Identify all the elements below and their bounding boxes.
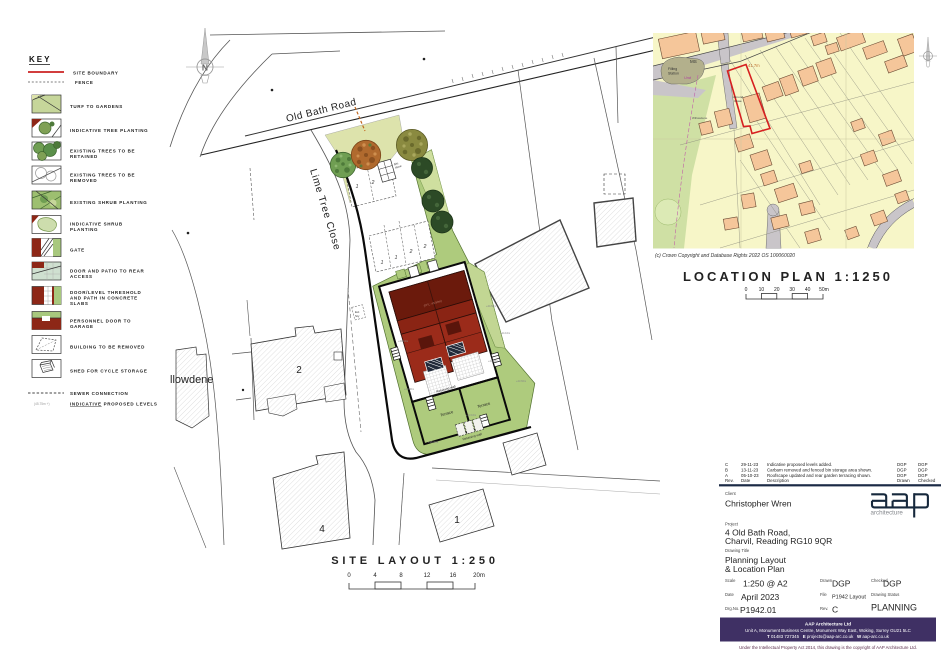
svg-text:DGP: DGP (918, 473, 928, 478)
svg-text:architecture: architecture (871, 510, 904, 517)
svg-text:4: 4 (319, 524, 325, 535)
svg-text:Under the Intellectual Propert: Under the Intellectual Property Act 2014… (739, 645, 917, 650)
svg-text:29-11-23: 29-11-23 (741, 462, 759, 467)
svg-text:INDICATIVE PROPOSED LEVELS: INDICATIVE PROPOSED LEVELS (70, 402, 158, 407)
svg-text:+43.60m: +43.60m (516, 379, 526, 383)
svg-text:INDICATIVE TREE PLANTING: INDICATIVE TREE PLANTING (70, 128, 148, 133)
svg-text:Date: Date (741, 478, 751, 483)
svg-text:Drg.No.: Drg.No. (725, 606, 739, 611)
svg-text:DGP: DGP (918, 467, 928, 472)
svg-text:12: 12 (424, 573, 431, 579)
svg-text:DGP: DGP (897, 467, 907, 472)
svg-text:DGP: DGP (897, 473, 907, 478)
svg-text:P1942.01: P1942.01 (740, 605, 777, 615)
svg-text:Charvil, Reading RG10 9QR: Charvil, Reading RG10 9QR (725, 536, 832, 546)
svg-text:16: 16 (450, 573, 457, 579)
svg-text:+44.10m: +44.10m (500, 331, 510, 335)
svg-text:Old Bath Road: Old Bath Road (285, 97, 358, 125)
svg-text:llowdene: llowdene (170, 374, 213, 386)
svg-text:DGP: DGP (897, 462, 907, 467)
svg-text:REMOVED: REMOVED (70, 178, 97, 183)
svg-text:Rev.: Rev. (725, 478, 734, 483)
svg-text:FENCE: FENCE (75, 80, 94, 85)
svg-text:Checked: Checked (918, 478, 936, 483)
svg-text:+44.05m: +44.05m (488, 359, 498, 363)
svg-text:N: N (202, 63, 208, 73)
svg-text:& Location Plan: & Location Plan (725, 564, 785, 574)
svg-text:A: A (725, 473, 728, 478)
svg-text:PLANTING: PLANTING (70, 227, 98, 232)
svg-text:Close: Close (734, 99, 742, 103)
svg-text:RETAINED: RETAINED (70, 154, 98, 159)
svg-text:Date: Date (725, 592, 735, 597)
svg-text:8: 8 (399, 573, 403, 579)
svg-text:2: 2 (409, 249, 413, 255)
svg-text:Rev.: Rev. (820, 606, 828, 611)
svg-text:+43.90m: +43.90m (404, 387, 414, 391)
svg-text:Sty: Sty (355, 314, 360, 318)
svg-text:1: 1 (381, 260, 384, 266)
svg-text:TURF TO GARDENS: TURF TO GARDENS (70, 104, 123, 109)
svg-text:GATE: GATE (70, 248, 85, 253)
svg-text:Station: Station (668, 72, 679, 76)
svg-text:50m: 50m (819, 287, 829, 293)
svg-text:SITE BOUNDARY: SITE BOUNDARY (73, 71, 119, 76)
svg-text:Description: Description (767, 478, 790, 483)
svg-text:MS: MS (690, 59, 697, 64)
svg-text:INDICATIVE SHRUB: INDICATIVE SHRUB (70, 222, 123, 227)
svg-text:P1942 Layout: P1942 Layout (832, 595, 866, 601)
svg-text:Unit A, Monument Business Cent: Unit A, Monument Business Centre, Monume… (745, 628, 911, 633)
svg-text:2: 2 (423, 244, 427, 250)
svg-text:Project: Project (725, 522, 739, 527)
svg-text:AAP Architecture Ltd: AAP Architecture Ltd (805, 622, 851, 627)
svg-text:B: B (725, 467, 728, 472)
svg-text:05-10-23: 05-10-23 (741, 473, 759, 478)
svg-text:GARAGE: GARAGE (70, 324, 94, 329)
svg-text:Carbarn removed and fenced bin: Carbarn removed and fenced bin storage a… (767, 467, 872, 472)
svg-text:DGP: DGP (918, 462, 928, 467)
svg-text:Drawn: Drawn (820, 578, 833, 583)
svg-text:13-11-23: 13-11-23 (741, 467, 759, 472)
svg-text:1: 1 (395, 255, 398, 261)
svg-text:PERSONNEL DOOR TO: PERSONNEL DOOR TO (70, 319, 131, 324)
svg-text:(c) Crown Copyright and Databa: (c) Crown Copyright and Database Rights … (655, 253, 795, 259)
svg-text:Drawing Status: Drawing Status (871, 592, 899, 597)
svg-text:SLABS: SLABS (70, 301, 89, 306)
svg-text:File: File (820, 592, 827, 597)
svg-text:10: 10 (759, 287, 765, 293)
svg-text:T 01483 727345 E projects@aa: T 01483 727345 E projects@aap-arc.co.uk … (767, 634, 890, 639)
svg-text:ACCESS: ACCESS (70, 274, 93, 279)
svg-text:41.7m: 41.7m (748, 63, 760, 68)
svg-text:Drawing Title: Drawing Title (725, 548, 750, 553)
svg-text:DOOR/LEVEL THRESHOLD: DOOR/LEVEL THRESHOLD (70, 290, 142, 295)
svg-text:C: C (832, 605, 838, 615)
svg-text:PLANNING: PLANNING (871, 603, 917, 613)
svg-text:April 2023: April 2023 (741, 592, 780, 602)
svg-text:Indicative proposed levels add: Indicative proposed levels added. (767, 462, 832, 467)
svg-text:BUILDING TO BE REMOVED: BUILDING TO BE REMOVED (70, 345, 145, 350)
svg-text:Filling: Filling (668, 67, 677, 71)
svg-text:C: C (725, 462, 728, 467)
svg-text:+44.50m: +44.50m (486, 304, 496, 308)
svg-text:(45.75m +): (45.75m +) (34, 402, 50, 406)
svg-text:2: 2 (296, 365, 302, 376)
svg-text:20m: 20m (473, 573, 485, 579)
svg-text:20: 20 (774, 287, 780, 293)
svg-text:2: 2 (371, 180, 375, 186)
svg-text:EXISTING TREES TO BE: EXISTING TREES TO BE (70, 173, 135, 178)
svg-text:Client: Client (725, 491, 737, 496)
svg-text:AND PATH IN CONCRETE: AND PATH IN CONCRETE (70, 296, 138, 301)
svg-text:Willowdene: Willowdene (692, 116, 708, 120)
svg-text:+38.20m: +38.20m (428, 440, 438, 444)
svg-text:30: 30 (789, 287, 795, 293)
svg-text:store: store (394, 164, 402, 170)
svg-text:EXISTING SHRUB PLANTING: EXISTING SHRUB PLANTING (70, 200, 147, 205)
svg-text:1:250 @ A2: 1:250 @ A2 (743, 579, 788, 589)
svg-text:Scale: Scale (725, 578, 736, 583)
svg-text:DOOR AND PATIO TO REAR: DOOR AND PATIO TO REAR (70, 269, 144, 274)
svg-text:DGP: DGP (883, 579, 902, 589)
svg-text:Drawn: Drawn (897, 478, 910, 483)
svg-text:SEWER CONNECTION: SEWER CONNECTION (70, 391, 128, 396)
svg-text:Roofscape updated and rear gar: Roofscape updated and rear garden terrac… (767, 473, 871, 478)
svg-text:+44.10m: +44.10m (398, 339, 408, 343)
svg-text:1: 1 (454, 515, 460, 526)
svg-text:DGP: DGP (832, 579, 851, 589)
svg-text:LOCATION PLAN 1:1250: LOCATION PLAN 1:1250 (683, 269, 893, 284)
svg-text:EXISTING TREES TO BE: EXISTING TREES TO BE (70, 149, 135, 154)
svg-text:4: 4 (373, 573, 377, 579)
svg-text:SITE LAYOUT 1:250: SITE LAYOUT 1:250 (331, 555, 499, 567)
svg-text:1: 1 (356, 184, 359, 190)
svg-text:Christopher Wren: Christopher Wren (725, 499, 792, 509)
svg-text:KEY: KEY (29, 55, 51, 64)
svg-text:+43.10m: +43.10m (466, 413, 476, 417)
svg-text:0: 0 (745, 287, 748, 293)
svg-text:Und: Und (684, 76, 692, 80)
svg-text:40: 40 (805, 287, 811, 293)
svg-text:0: 0 (347, 573, 351, 579)
svg-text:SHED FOR CYCLE STORAGE: SHED FOR CYCLE STORAGE (70, 369, 147, 374)
